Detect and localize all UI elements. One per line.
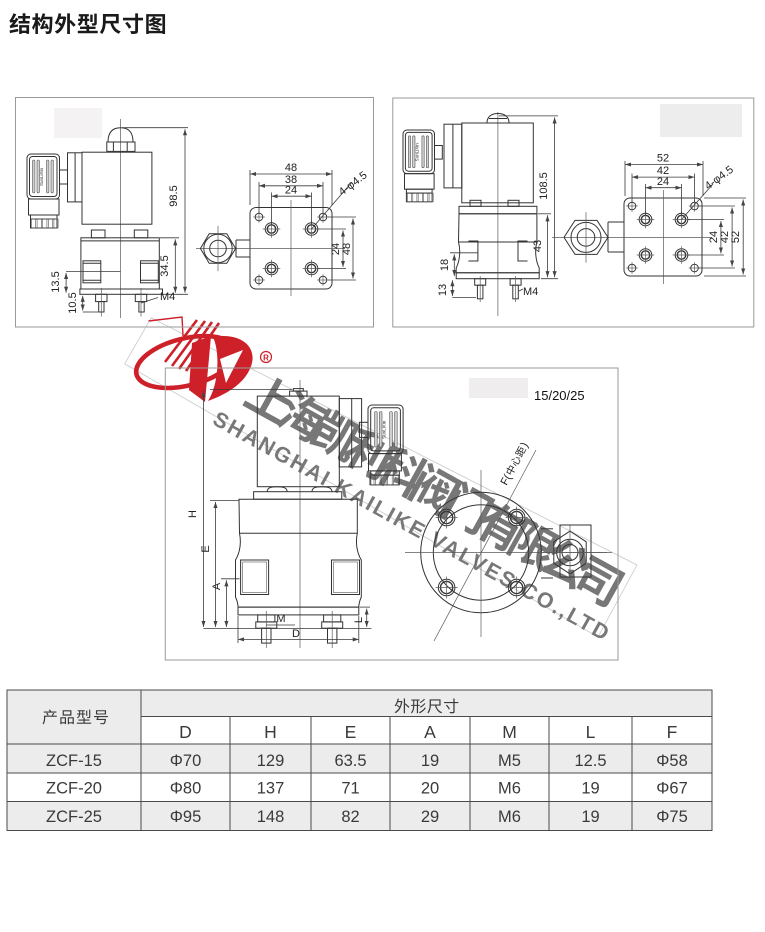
svg-text:12.5: 12.5: [574, 752, 606, 770]
svg-text:Φ80: Φ80: [170, 780, 202, 798]
svg-text:E: E: [200, 545, 212, 552]
svg-text:M4: M4: [160, 291, 175, 303]
svg-text:63.5: 63.5: [334, 752, 366, 770]
svg-text:19: 19: [581, 780, 599, 798]
svg-text:A: A: [211, 582, 223, 590]
svg-text:18: 18: [439, 259, 451, 271]
svg-text:24: 24: [285, 185, 297, 197]
svg-text:52: 52: [657, 153, 669, 165]
svg-text:52: 52: [730, 231, 742, 243]
svg-text:Φ67: Φ67: [656, 780, 688, 798]
svg-text:43: 43: [532, 240, 544, 252]
svg-text:71: 71: [341, 780, 359, 798]
svg-text:M6: M6: [498, 808, 521, 826]
svg-text:82: 82: [341, 808, 359, 826]
svg-text:ZCF-25: ZCF-25: [46, 808, 102, 826]
svg-text:34.5: 34.5: [159, 255, 171, 276]
svg-text:A: A: [424, 722, 436, 742]
svg-text:15/20/25: 15/20/25: [534, 388, 585, 403]
svg-text:48: 48: [341, 243, 353, 255]
svg-text:19: 19: [581, 808, 599, 826]
svg-text:SunLiXin: SunLiXin: [382, 420, 387, 439]
svg-text:24: 24: [657, 176, 669, 188]
svg-text:M5: M5: [498, 752, 521, 770]
svg-text:98.5: 98.5: [168, 185, 180, 206]
svg-text:48: 48: [285, 162, 297, 174]
svg-text:20: 20: [421, 780, 439, 798]
svg-text:148: 148: [257, 808, 285, 826]
svg-text:Φ75: Φ75: [656, 808, 688, 826]
svg-text:M: M: [502, 722, 517, 742]
svg-text:L: L: [586, 722, 596, 742]
svg-text:108.5: 108.5: [538, 172, 550, 200]
svg-text:13.5: 13.5: [50, 271, 62, 292]
svg-text:29: 29: [421, 808, 439, 826]
svg-text:ZCF-20: ZCF-20: [46, 780, 102, 798]
svg-text:13: 13: [437, 284, 449, 296]
svg-text:R: R: [263, 354, 269, 363]
svg-text:D: D: [179, 722, 192, 742]
svg-text:Φ70: Φ70: [170, 752, 202, 770]
svg-text:E: E: [345, 722, 357, 742]
svg-text:F: F: [667, 722, 678, 742]
svg-text:SunLiXin: SunLiXin: [39, 167, 44, 186]
svg-text:L: L: [353, 617, 365, 623]
svg-text:19: 19: [421, 752, 439, 770]
svg-text:D: D: [292, 628, 300, 640]
svg-text:M: M: [276, 613, 285, 625]
svg-text:Φ95: Φ95: [170, 808, 202, 826]
svg-text:H: H: [264, 722, 277, 742]
svg-text:Φ58: Φ58: [656, 752, 688, 770]
svg-text:SunLiXin: SunLiXin: [415, 143, 420, 162]
svg-text:10.5: 10.5: [67, 292, 79, 313]
svg-text:137: 137: [257, 780, 285, 798]
svg-text:M6: M6: [498, 780, 521, 798]
svg-text:ZCF-15: ZCF-15: [46, 752, 102, 770]
svg-text:H: H: [187, 510, 199, 518]
svg-text:129: 129: [257, 752, 285, 770]
svg-text:M4: M4: [523, 286, 538, 298]
